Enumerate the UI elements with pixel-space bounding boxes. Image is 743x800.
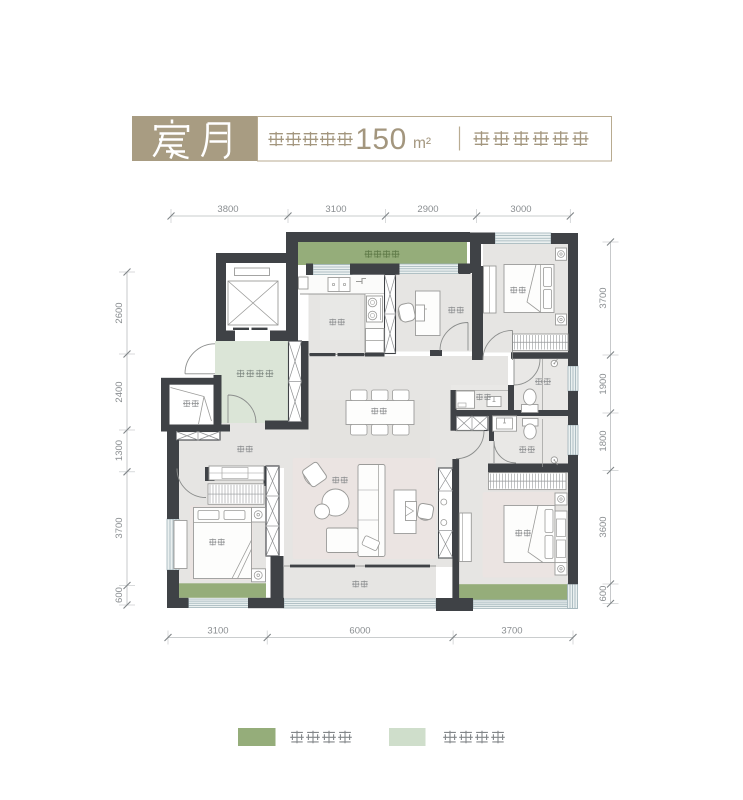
- svg-text:3600: 3600: [598, 516, 609, 537]
- svg-text:3100: 3100: [207, 626, 228, 637]
- svg-text:3700: 3700: [114, 517, 125, 538]
- svg-text:2400: 2400: [114, 381, 125, 402]
- svg-text:3100: 3100: [325, 204, 346, 215]
- svg-text:2600: 2600: [114, 302, 125, 323]
- svg-text:3800: 3800: [217, 204, 238, 215]
- svg-text:1800: 1800: [598, 430, 609, 451]
- svg-text:3700: 3700: [598, 287, 609, 308]
- svg-text:1300: 1300: [114, 440, 125, 461]
- svg-text:3700: 3700: [501, 626, 522, 637]
- svg-text:150: 150: [355, 123, 407, 156]
- svg-text:6000: 6000: [349, 626, 370, 637]
- svg-text:1900: 1900: [598, 373, 609, 394]
- svg-text:600: 600: [598, 586, 609, 602]
- svg-text:2900: 2900: [417, 204, 438, 215]
- svg-text:600: 600: [114, 587, 125, 603]
- svg-text:m²: m²: [413, 135, 431, 152]
- svg-text:3000: 3000: [510, 204, 531, 215]
